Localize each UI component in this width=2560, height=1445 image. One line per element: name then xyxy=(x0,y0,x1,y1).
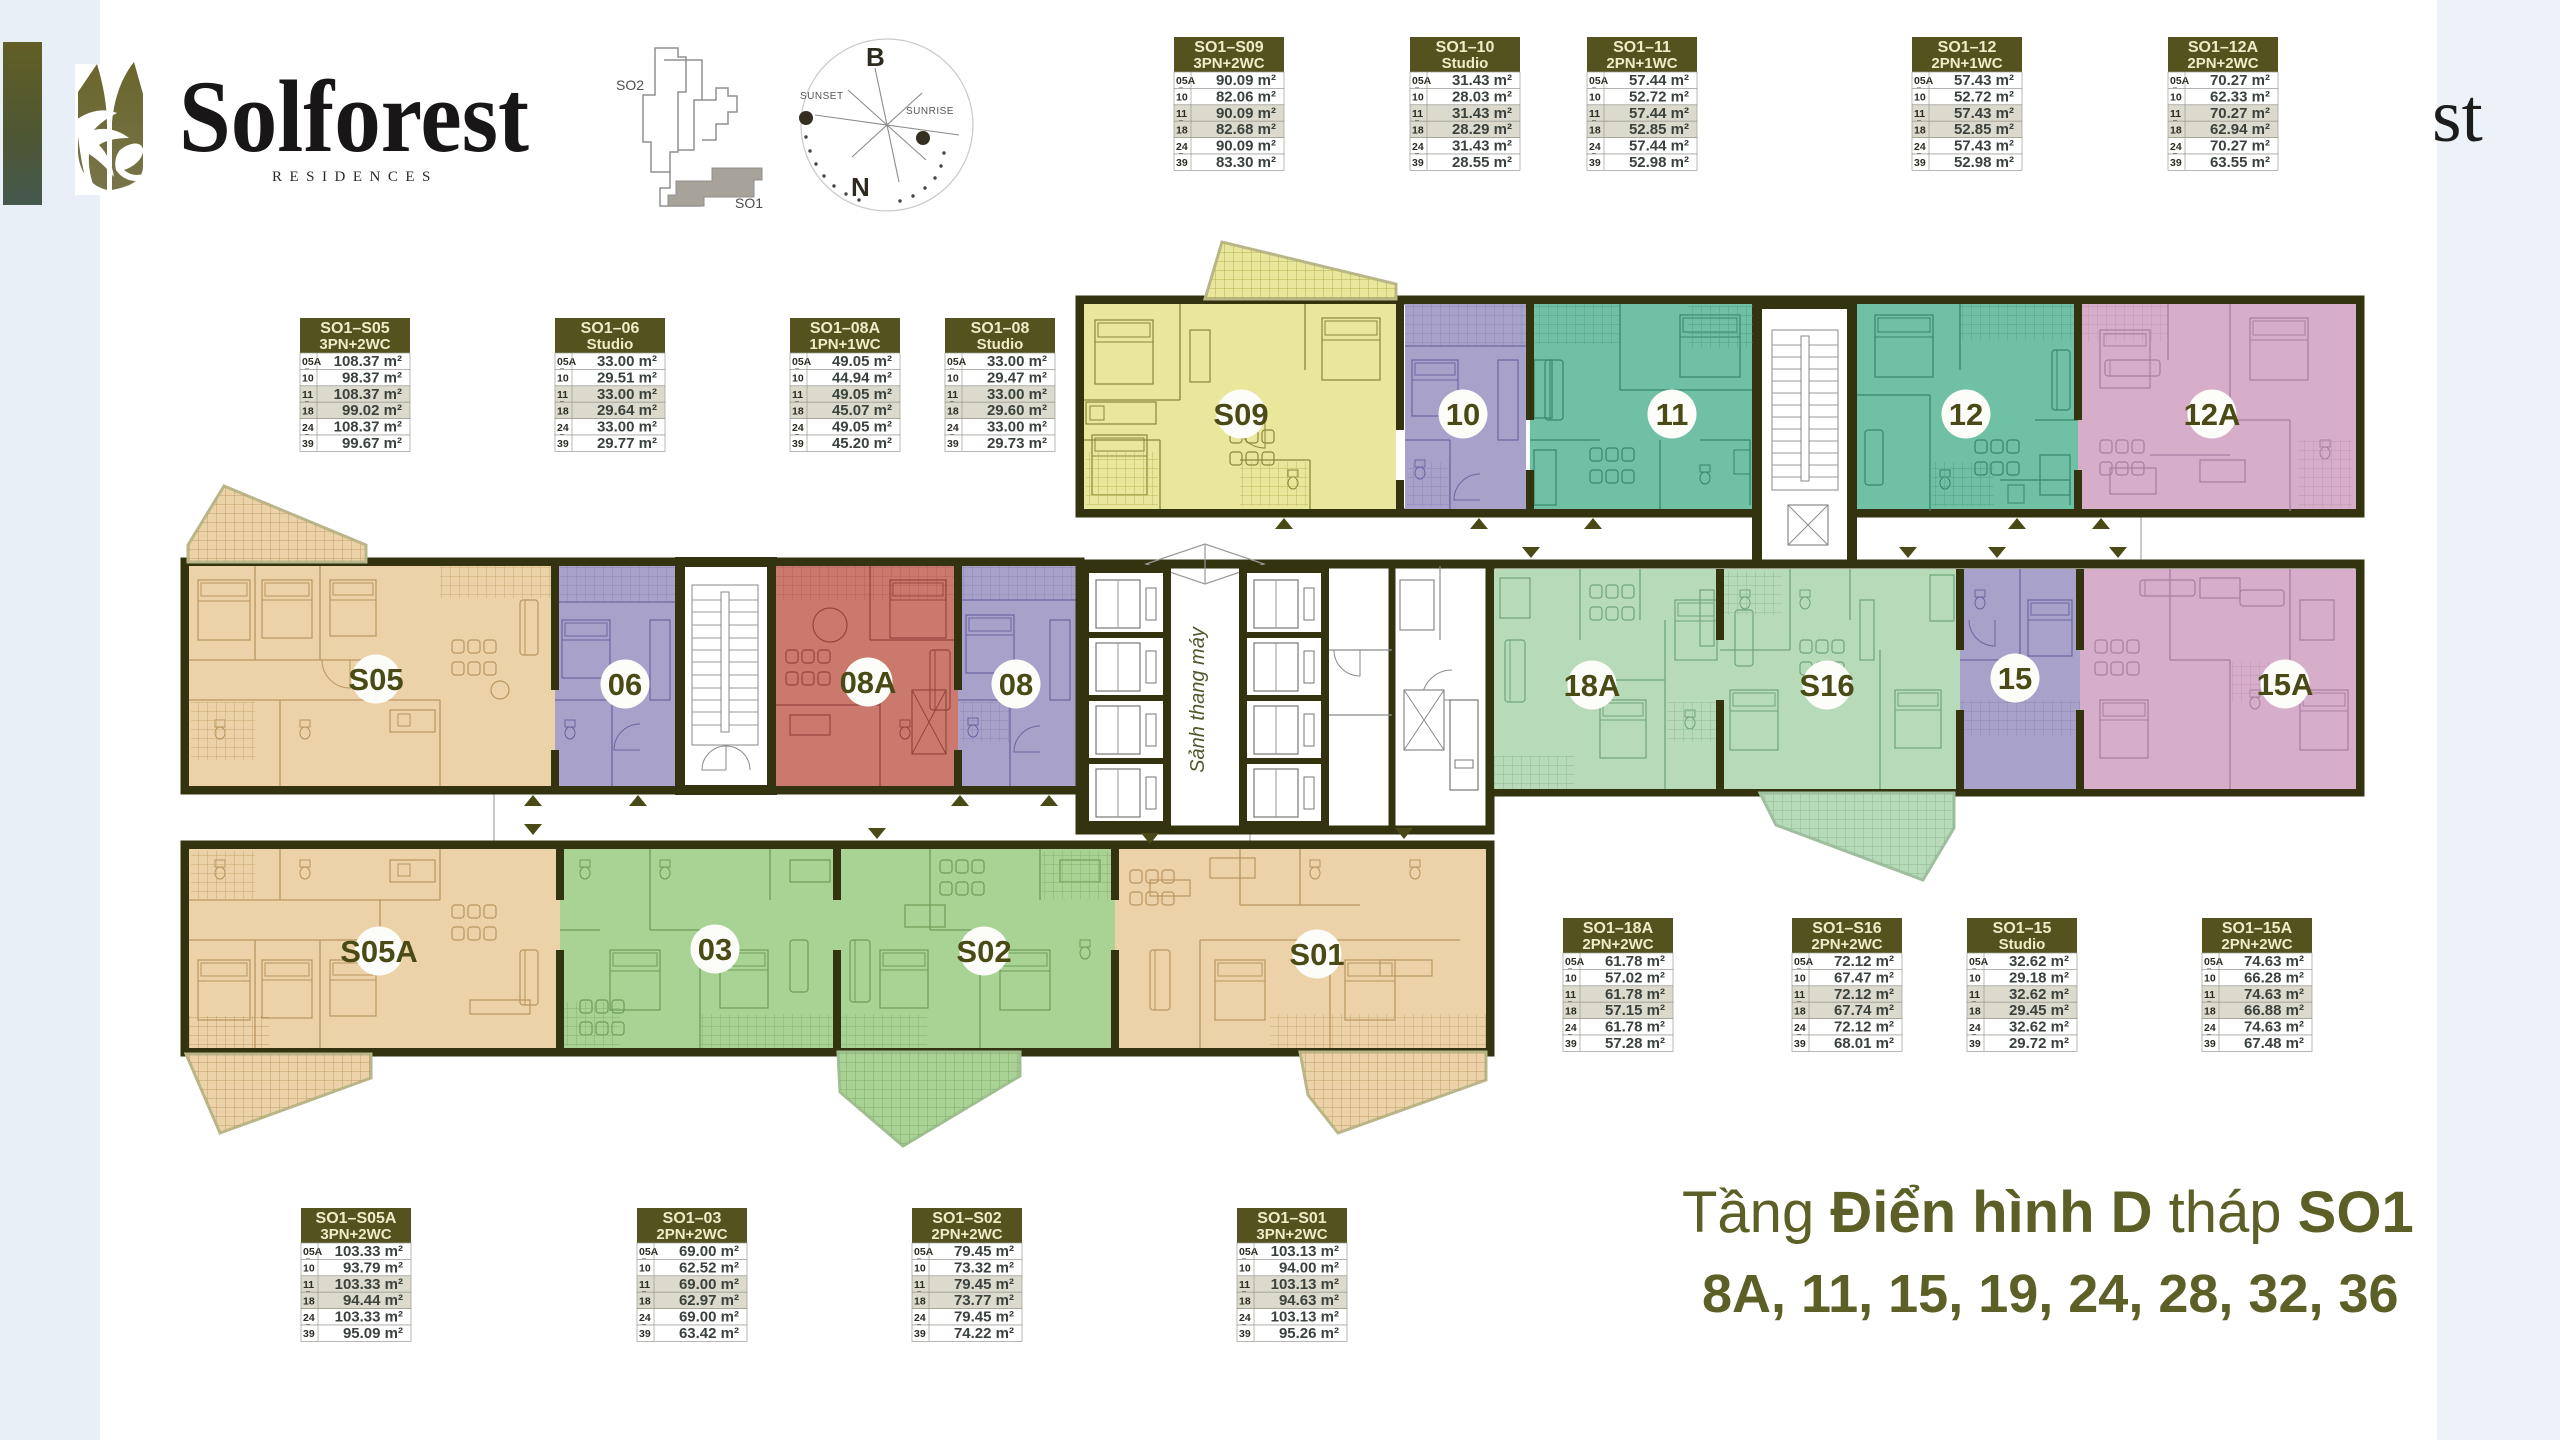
svg-text:SO1–08A: SO1–08A xyxy=(810,320,881,337)
svg-text:24: 24 xyxy=(914,1312,926,1324)
svg-text:39: 39 xyxy=(1565,1038,1577,1050)
svg-text:52.72 m²: 52.72 m² xyxy=(1954,88,2014,105)
svg-text:10: 10 xyxy=(1565,973,1577,985)
svg-text:39: 39 xyxy=(1589,157,1601,169)
svg-text:SO1–S05: SO1–S05 xyxy=(320,320,389,337)
svg-text:108.37 m²: 108.37 m² xyxy=(334,419,402,436)
svg-text:S02: S02 xyxy=(956,934,1011,969)
svg-text:SO1–15A: SO1–15A xyxy=(2222,920,2293,937)
svg-text:24: 24 xyxy=(1794,1022,1806,1034)
svg-text:3PN+2WC: 3PN+2WC xyxy=(319,336,390,353)
svg-text:10: 10 xyxy=(792,373,804,385)
svg-text:24: 24 xyxy=(302,422,314,434)
svg-text:18: 18 xyxy=(1969,1005,1981,1017)
svg-text:SO1–06: SO1–06 xyxy=(581,320,640,337)
svg-text:33.00 m²: 33.00 m² xyxy=(597,419,657,436)
svg-text:57.44 m²: 57.44 m² xyxy=(1629,138,1689,155)
svg-text:99.02 m²: 99.02 m² xyxy=(342,402,402,419)
svg-text:39: 39 xyxy=(2204,1038,2216,1050)
svg-text:98.37 m²: 98.37 m² xyxy=(342,369,402,386)
svg-text:24: 24 xyxy=(303,1312,315,1324)
svg-text:52.98 m²: 52.98 m² xyxy=(1954,154,2014,171)
svg-text:45.20 m²: 45.20 m² xyxy=(832,435,892,452)
svg-text:63.55 m²: 63.55 m² xyxy=(2210,154,2270,171)
svg-text:03: 03 xyxy=(698,932,732,967)
svg-text:05A: 05A xyxy=(914,1246,934,1258)
svg-text:52.72 m²: 52.72 m² xyxy=(1629,88,1689,105)
svg-text:29.45 m²: 29.45 m² xyxy=(2009,1002,2069,1019)
svg-text:79.45 m²: 79.45 m² xyxy=(954,1276,1014,1293)
svg-text:66.88 m²: 66.88 m² xyxy=(2244,1002,2304,1019)
svg-text:Studio: Studio xyxy=(587,336,634,353)
svg-text:39: 39 xyxy=(914,1328,926,1340)
svg-text:24: 24 xyxy=(2204,1022,2216,1034)
svg-text:61.78 m²: 61.78 m² xyxy=(1605,953,1665,970)
svg-text:18: 18 xyxy=(1239,1295,1251,1307)
svg-text:24: 24 xyxy=(1239,1312,1251,1324)
svg-text:05A: 05A xyxy=(557,356,577,368)
svg-text:49.05 m²: 49.05 m² xyxy=(832,419,892,436)
svg-text:Studio: Studio xyxy=(1999,936,2046,953)
svg-text:SO1–S09: SO1–S09 xyxy=(1194,39,1263,56)
svg-text:95.09 m²: 95.09 m² xyxy=(343,1325,403,1342)
svg-text:11: 11 xyxy=(1656,397,1689,432)
svg-text:18: 18 xyxy=(1794,1005,1806,1017)
svg-text:SO2: SO2 xyxy=(616,77,644,93)
svg-text:S05A: S05A xyxy=(340,934,418,969)
svg-text:57.44 m²: 57.44 m² xyxy=(1629,105,1689,122)
svg-text:10: 10 xyxy=(1176,92,1188,104)
svg-text:RESIDENCES: RESIDENCES xyxy=(272,169,438,185)
svg-text:95.26 m²: 95.26 m² xyxy=(1279,1325,1339,1342)
svg-text:103.13 m²: 103.13 m² xyxy=(1271,1243,1339,1260)
svg-text:SO1–03: SO1–03 xyxy=(663,1210,722,1227)
svg-text:18: 18 xyxy=(1914,124,1926,136)
svg-text:SUNRISE: SUNRISE xyxy=(906,106,954,117)
svg-text:SO1–08: SO1–08 xyxy=(971,320,1030,337)
svg-text:05A: 05A xyxy=(1412,75,1432,87)
svg-text:61.78 m²: 61.78 m² xyxy=(1605,986,1665,1003)
svg-text:68.01 m²: 68.01 m² xyxy=(1834,1035,1894,1052)
svg-text:SO1–10: SO1–10 xyxy=(1436,39,1495,56)
svg-text:11: 11 xyxy=(792,389,803,401)
svg-text:33.00 m²: 33.00 m² xyxy=(987,386,1047,403)
svg-text:18A: 18A xyxy=(1564,668,1621,703)
svg-text:74.22 m²: 74.22 m² xyxy=(954,1325,1014,1342)
svg-text:Solforest: Solforest xyxy=(179,60,529,174)
svg-text:10: 10 xyxy=(302,373,314,385)
svg-text:11: 11 xyxy=(302,389,313,401)
svg-text:93.79 m²: 93.79 m² xyxy=(343,1259,403,1276)
svg-text:S05: S05 xyxy=(348,662,403,697)
svg-text:24: 24 xyxy=(2170,141,2182,153)
svg-text:103.33 m²: 103.33 m² xyxy=(335,1243,403,1260)
svg-text:45.07 m²: 45.07 m² xyxy=(832,402,892,419)
svg-text:2PN+2WC: 2PN+2WC xyxy=(1582,936,1653,953)
svg-text:39: 39 xyxy=(1914,157,1926,169)
svg-text:103.13 m²: 103.13 m² xyxy=(1271,1276,1339,1293)
svg-text:39: 39 xyxy=(1176,157,1188,169)
svg-text:99.67 m²: 99.67 m² xyxy=(342,435,402,452)
svg-text:24: 24 xyxy=(557,422,569,434)
svg-text:3PN+2WC: 3PN+2WC xyxy=(1193,55,1264,72)
svg-text:94.63 m²: 94.63 m² xyxy=(1279,1292,1339,1309)
svg-text:18: 18 xyxy=(1412,124,1424,136)
svg-text:33.00 m²: 33.00 m² xyxy=(987,353,1047,370)
svg-text:SO1–11: SO1–11 xyxy=(1613,39,1671,56)
svg-text:10: 10 xyxy=(1589,92,1601,104)
svg-text:05A: 05A xyxy=(302,356,322,368)
svg-text:24: 24 xyxy=(947,422,959,434)
svg-text:33.00 m²: 33.00 m² xyxy=(597,353,657,370)
svg-text:29.77 m²: 29.77 m² xyxy=(597,435,657,452)
svg-text:18: 18 xyxy=(303,1295,315,1307)
svg-text:90.09 m²: 90.09 m² xyxy=(1216,105,1276,122)
svg-text:Sảnh thang máy: Sảnh thang máy xyxy=(1187,626,1209,773)
svg-text:05A: 05A xyxy=(1914,75,1934,87)
svg-text:79.45 m²: 79.45 m² xyxy=(954,1243,1014,1260)
svg-text:Studio: Studio xyxy=(1442,55,1489,72)
svg-text:10: 10 xyxy=(1914,92,1926,104)
svg-text:11: 11 xyxy=(1239,1279,1250,1291)
svg-text:90.09 m²: 90.09 m² xyxy=(1216,72,1276,89)
svg-text:10: 10 xyxy=(1446,397,1480,432)
svg-text:90.09 m²: 90.09 m² xyxy=(1216,138,1276,155)
svg-text:11: 11 xyxy=(2170,108,2181,120)
svg-text:1PN+1WC: 1PN+1WC xyxy=(809,336,880,353)
svg-text:05A: 05A xyxy=(1565,956,1585,968)
svg-text:18: 18 xyxy=(2170,124,2182,136)
svg-text:06: 06 xyxy=(608,667,642,702)
svg-text:57.44 m²: 57.44 m² xyxy=(1629,72,1689,89)
svg-text:18: 18 xyxy=(639,1295,651,1307)
svg-text:39: 39 xyxy=(1969,1038,1981,1050)
svg-text:94.44 m²: 94.44 m² xyxy=(343,1292,403,1309)
svg-text:28.29 m²: 28.29 m² xyxy=(1452,121,1512,138)
svg-text:05A: 05A xyxy=(792,356,812,368)
svg-text:52.85 m²: 52.85 m² xyxy=(1954,121,2014,138)
svg-text:32.62 m²: 32.62 m² xyxy=(2009,986,2069,1003)
svg-text:39: 39 xyxy=(639,1328,651,1340)
svg-text:57.43 m²: 57.43 m² xyxy=(1954,105,2014,122)
svg-text:31.43 m²: 31.43 m² xyxy=(1452,105,1512,122)
svg-text:11: 11 xyxy=(557,389,568,401)
svg-text:28.03 m²: 28.03 m² xyxy=(1452,88,1512,105)
svg-text:3PN+2WC: 3PN+2WC xyxy=(1256,1226,1327,1243)
svg-text:108.37 m²: 108.37 m² xyxy=(334,386,402,403)
svg-text:29.18 m²: 29.18 m² xyxy=(2009,969,2069,986)
svg-text:11: 11 xyxy=(1412,108,1423,120)
svg-text:Tầng Điển hình D tháp SO1: Tầng Điển hình D tháp SO1 xyxy=(1682,1180,2414,1245)
svg-text:70.27 m²: 70.27 m² xyxy=(2210,105,2270,122)
svg-text:24: 24 xyxy=(639,1312,651,1324)
svg-text:10: 10 xyxy=(2170,92,2182,104)
svg-text:73.32 m²: 73.32 m² xyxy=(954,1259,1014,1276)
svg-text:15A: 15A xyxy=(2257,667,2314,702)
svg-text:72.12 m²: 72.12 m² xyxy=(1834,953,1894,970)
svg-text:39: 39 xyxy=(303,1328,315,1340)
svg-text:18: 18 xyxy=(792,405,804,417)
svg-text:18: 18 xyxy=(1589,124,1601,136)
svg-text:11: 11 xyxy=(639,1279,650,1291)
svg-text:73.77 m²: 73.77 m² xyxy=(954,1292,1014,1309)
svg-text:74.63 m²: 74.63 m² xyxy=(2244,1019,2304,1036)
svg-text:39: 39 xyxy=(2170,157,2182,169)
svg-text:3PN+2WC: 3PN+2WC xyxy=(320,1226,391,1243)
svg-text:44.94 m²: 44.94 m² xyxy=(832,369,892,386)
svg-text:05A: 05A xyxy=(2170,75,2190,87)
svg-text:49.05 m²: 49.05 m² xyxy=(832,353,892,370)
svg-text:79.45 m²: 79.45 m² xyxy=(954,1309,1014,1326)
svg-text:67.47 m²: 67.47 m² xyxy=(1834,969,1894,986)
svg-text:57.28 m²: 57.28 m² xyxy=(1605,1035,1665,1052)
svg-text:39: 39 xyxy=(1412,157,1424,169)
svg-text:12A: 12A xyxy=(2184,397,2241,432)
svg-text:SO1–12: SO1–12 xyxy=(1938,39,1997,56)
svg-text:69.00 m²: 69.00 m² xyxy=(679,1309,739,1326)
svg-text:10: 10 xyxy=(1412,92,1424,104)
svg-text:2PN+2WC: 2PN+2WC xyxy=(2187,55,2258,72)
svg-text:Studio: Studio xyxy=(977,336,1024,353)
svg-text:29.47 m²: 29.47 m² xyxy=(987,369,1047,386)
svg-text:103.33 m²: 103.33 m² xyxy=(335,1309,403,1326)
svg-text:SO1–S05A: SO1–S05A xyxy=(316,1210,397,1227)
svg-text:74.63 m²: 74.63 m² xyxy=(2244,986,2304,1003)
svg-text:SO1–S16: SO1–S16 xyxy=(1812,920,1881,937)
svg-text:S01: S01 xyxy=(1289,937,1344,972)
svg-text:SO1–18A: SO1–18A xyxy=(1583,920,1654,937)
svg-text:05A: 05A xyxy=(1176,75,1196,87)
svg-text:28.55 m²: 28.55 m² xyxy=(1452,154,1512,171)
svg-text:2PN+2WC: 2PN+2WC xyxy=(1811,936,1882,953)
svg-text:18: 18 xyxy=(302,405,314,417)
svg-text:12: 12 xyxy=(1949,397,1983,432)
svg-text:52.98 m²: 52.98 m² xyxy=(1629,154,1689,171)
svg-text:10: 10 xyxy=(947,373,959,385)
svg-text:32.62 m²: 32.62 m² xyxy=(2009,1019,2069,1036)
svg-text:SO1–12A: SO1–12A xyxy=(2188,39,2259,56)
svg-text:2PN+2WC: 2PN+2WC xyxy=(656,1226,727,1243)
svg-text:18: 18 xyxy=(947,405,959,417)
svg-text:24: 24 xyxy=(1412,141,1424,153)
svg-text:32.62 m²: 32.62 m² xyxy=(2009,953,2069,970)
svg-text:05A: 05A xyxy=(1239,1246,1259,1258)
svg-text:72.12 m²: 72.12 m² xyxy=(1834,1019,1894,1036)
svg-text:05A: 05A xyxy=(303,1246,323,1258)
svg-text:15: 15 xyxy=(1998,661,2032,696)
svg-text:05A: 05A xyxy=(639,1246,659,1258)
svg-text:39: 39 xyxy=(302,438,314,450)
svg-text:49.05 m²: 49.05 m² xyxy=(832,386,892,403)
svg-text:108.37 m²: 108.37 m² xyxy=(334,353,402,370)
svg-text:29.60 m²: 29.60 m² xyxy=(987,402,1047,419)
svg-text:SUNSET: SUNSET xyxy=(800,91,844,102)
svg-text:10: 10 xyxy=(1794,973,1806,985)
svg-text:24: 24 xyxy=(1589,141,1601,153)
svg-text:8A, 11, 15, 19, 24, 28, 32, 36: 8A, 11, 15, 19, 24, 28, 32, 36 xyxy=(1702,1264,2399,1324)
svg-text:11: 11 xyxy=(1969,989,1980,1001)
svg-text:S09: S09 xyxy=(1213,397,1268,432)
svg-text:11: 11 xyxy=(2204,989,2215,1001)
svg-text:2PN+1WC: 2PN+1WC xyxy=(1606,55,1677,72)
svg-text:18: 18 xyxy=(1176,124,1188,136)
svg-text:57.43 m²: 57.43 m² xyxy=(1954,138,2014,155)
svg-text:82.68 m²: 82.68 m² xyxy=(1216,121,1276,138)
svg-text:39: 39 xyxy=(792,438,804,450)
svg-text:st: st xyxy=(2432,74,2483,158)
svg-text:SO1–S01: SO1–S01 xyxy=(1257,1210,1326,1227)
svg-text:33.00 m²: 33.00 m² xyxy=(987,419,1047,436)
svg-text:24: 24 xyxy=(1969,1022,1981,1034)
svg-text:10: 10 xyxy=(1969,973,1981,985)
svg-text:39: 39 xyxy=(1239,1328,1251,1340)
svg-text:2PN+1WC: 2PN+1WC xyxy=(1931,55,2002,72)
svg-text:57.43 m²: 57.43 m² xyxy=(1954,72,2014,89)
svg-text:62.33 m²: 62.33 m² xyxy=(2210,88,2270,105)
svg-text:10: 10 xyxy=(1239,1263,1251,1275)
svg-text:08A: 08A xyxy=(840,665,897,700)
svg-text:S16: S16 xyxy=(1799,668,1854,703)
svg-text:11: 11 xyxy=(1794,989,1805,1001)
svg-text:70.27 m²: 70.27 m² xyxy=(2210,72,2270,89)
svg-text:24: 24 xyxy=(792,422,804,434)
svg-text:05A: 05A xyxy=(1969,956,1989,968)
svg-text:10: 10 xyxy=(2204,973,2216,985)
svg-text:29.73 m²: 29.73 m² xyxy=(987,435,1047,452)
svg-text:11: 11 xyxy=(947,389,958,401)
svg-text:2PN+2WC: 2PN+2WC xyxy=(931,1226,1002,1243)
svg-text:94.00 m²: 94.00 m² xyxy=(1279,1259,1339,1276)
svg-text:39: 39 xyxy=(947,438,959,450)
svg-text:83.30 m²: 83.30 m² xyxy=(1216,154,1276,171)
svg-text:103.13 m²: 103.13 m² xyxy=(1271,1309,1339,1326)
svg-text:29.51 m²: 29.51 m² xyxy=(597,369,657,386)
svg-text:67.74 m²: 67.74 m² xyxy=(1834,1002,1894,1019)
svg-text:11: 11 xyxy=(1589,108,1600,120)
svg-text:10: 10 xyxy=(303,1263,315,1275)
svg-text:29.64 m²: 29.64 m² xyxy=(597,402,657,419)
svg-text:10: 10 xyxy=(557,373,569,385)
svg-text:74.63 m²: 74.63 m² xyxy=(2244,953,2304,970)
svg-text:70.27 m²: 70.27 m² xyxy=(2210,138,2270,155)
svg-text:B: B xyxy=(866,42,885,72)
svg-text:05A: 05A xyxy=(2204,956,2224,968)
svg-text:24: 24 xyxy=(1565,1022,1577,1034)
svg-text:11: 11 xyxy=(1176,108,1187,120)
svg-text:18: 18 xyxy=(1565,1005,1577,1017)
svg-text:82.06 m²: 82.06 m² xyxy=(1216,88,1276,105)
svg-text:72.12 m²: 72.12 m² xyxy=(1834,986,1894,1003)
svg-text:62.97 m²: 62.97 m² xyxy=(679,1292,739,1309)
svg-text:62.94 m²: 62.94 m² xyxy=(2210,121,2270,138)
svg-text:11: 11 xyxy=(914,1279,925,1291)
svg-text:11: 11 xyxy=(1914,108,1925,120)
svg-text:69.00 m²: 69.00 m² xyxy=(679,1243,739,1260)
svg-text:62.52 m²: 62.52 m² xyxy=(679,1259,739,1276)
svg-text:2PN+2WC: 2PN+2WC xyxy=(2221,936,2292,953)
svg-text:52.85 m²: 52.85 m² xyxy=(1629,121,1689,138)
svg-text:N: N xyxy=(851,172,870,202)
svg-text:61.78 m²: 61.78 m² xyxy=(1605,1019,1665,1036)
svg-text:103.33 m²: 103.33 m² xyxy=(335,1276,403,1293)
svg-text:57.15 m²: 57.15 m² xyxy=(1605,1002,1665,1019)
svg-text:18: 18 xyxy=(557,405,569,417)
svg-text:67.48 m²: 67.48 m² xyxy=(2244,1035,2304,1052)
svg-text:05A: 05A xyxy=(1589,75,1609,87)
svg-text:57.02 m²: 57.02 m² xyxy=(1605,969,1665,986)
svg-text:10: 10 xyxy=(639,1263,651,1275)
svg-text:10: 10 xyxy=(914,1263,926,1275)
svg-text:24: 24 xyxy=(1914,141,1926,153)
svg-text:63.42 m²: 63.42 m² xyxy=(679,1325,739,1342)
svg-text:SO1: SO1 xyxy=(735,195,763,211)
svg-text:SO1–S02: SO1–S02 xyxy=(932,1210,1001,1227)
svg-text:31.43 m²: 31.43 m² xyxy=(1452,138,1512,155)
svg-text:SO1–15: SO1–15 xyxy=(1993,920,2052,937)
svg-text:69.00 m²: 69.00 m² xyxy=(679,1276,739,1293)
svg-text:05A: 05A xyxy=(947,356,967,368)
svg-text:18: 18 xyxy=(914,1295,926,1307)
svg-text:11: 11 xyxy=(303,1279,314,1291)
svg-text:05A: 05A xyxy=(1794,956,1814,968)
svg-text:33.00 m²: 33.00 m² xyxy=(597,386,657,403)
svg-text:24: 24 xyxy=(1176,141,1188,153)
svg-text:11: 11 xyxy=(1565,989,1576,1001)
svg-text:08: 08 xyxy=(999,667,1033,702)
svg-text:66.28 m²: 66.28 m² xyxy=(2244,969,2304,986)
svg-text:29.72 m²: 29.72 m² xyxy=(2009,1035,2069,1052)
svg-text:18: 18 xyxy=(2204,1005,2216,1017)
svg-text:39: 39 xyxy=(557,438,569,450)
svg-text:31.43 m²: 31.43 m² xyxy=(1452,72,1512,89)
svg-text:39: 39 xyxy=(1794,1038,1806,1050)
